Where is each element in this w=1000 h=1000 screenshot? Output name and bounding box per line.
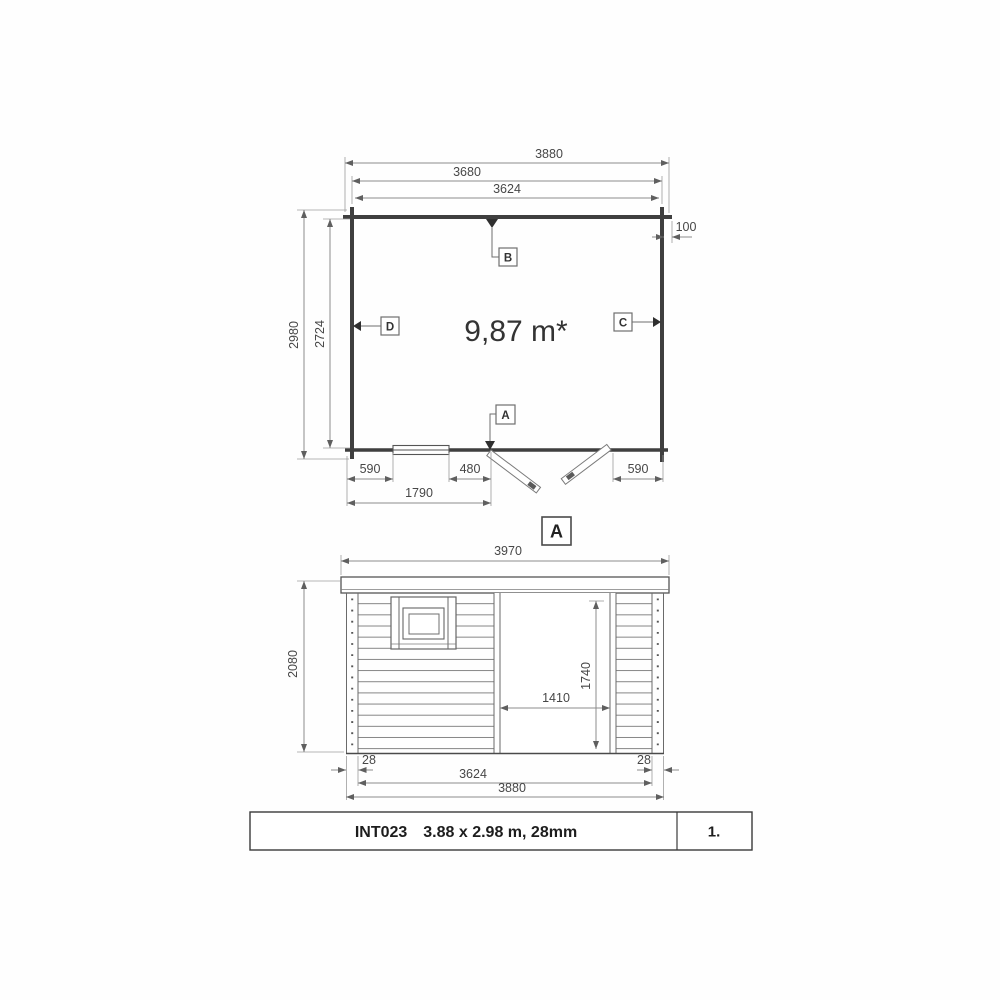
elev-dim-log-wall-length-label: 3624	[459, 767, 487, 781]
plan-marker-b: B	[486, 219, 517, 266]
elev-dim-roof-width-label: 3970	[494, 544, 522, 558]
elev-dim-bottom-chain: 28 28 3624 3880	[331, 753, 679, 800]
elev-window-glass	[409, 614, 439, 634]
elev-dim-door-height-label: 1740	[579, 662, 593, 690]
plan-dim-inner-depth: 2724	[313, 219, 350, 448]
plan-area-label: 9,87 m*	[464, 315, 568, 348]
section-marker: A	[542, 517, 571, 545]
elev-dim-corner-left-label: 28	[362, 753, 376, 767]
section-marker-label: A	[550, 522, 563, 542]
plan-dim-overall-width: 3880	[345, 147, 669, 213]
elev-window	[391, 597, 456, 649]
plan-dim-inner-width: 3624	[355, 182, 659, 198]
plan-dim-wall-to-window-label: 590	[360, 462, 381, 476]
technical-drawing-page: 9,87 m* B A D C	[0, 0, 1000, 1000]
title-block: INT0233.88 x 2.98 m, 28mm 1.	[250, 812, 752, 850]
plan-dim-wall-to-door-label: 1790	[405, 486, 433, 500]
plan-marker-a-label: A	[501, 410, 509, 422]
elev-dim-wall-height-label: 2080	[286, 650, 300, 678]
plan-dim-inner-width-label: 3624	[493, 182, 521, 196]
floor-plan: 9,87 m* B A D C	[287, 147, 696, 506]
plan-window	[393, 446, 449, 455]
plan-dim-roof-overhang-label: 100	[676, 220, 697, 234]
plan-dim-inner-depth-label: 2724	[313, 320, 327, 348]
cabin-drawing: 9,87 m* B A D C	[0, 0, 1000, 1000]
plan-marker-c-label: C	[619, 318, 627, 330]
elev-siding-right	[616, 593, 652, 753]
elev-corner-post-right	[652, 593, 664, 753]
title-block-model: INT0233.88 x 2.98 m, 28mm	[355, 824, 577, 841]
front-elevation: 3970	[286, 544, 679, 800]
elev-door-opening	[494, 593, 616, 753]
elev-dim-roof-width: 3970	[341, 544, 669, 575]
elev-corner-post-left	[347, 593, 359, 753]
plan-dim-door-to-wall-label: 590	[628, 462, 649, 476]
elev-dim-corner-right-label: 28	[637, 753, 651, 767]
plan-marker-d-label: D	[386, 322, 394, 334]
elev-roof-fascia	[341, 577, 669, 593]
elev-dim-overall-width-label: 3880	[498, 781, 526, 795]
plan-marker-d: D	[353, 317, 399, 335]
plan-door-left-leaf	[487, 450, 541, 493]
plan-marker-c: C	[614, 313, 661, 331]
elev-dim-wall-height: 2080	[286, 581, 344, 752]
elev-dim-door-width-label: 1410	[542, 691, 570, 705]
plan-dim-overall-width-label: 3880	[535, 147, 563, 161]
title-block-page-number: 1.	[708, 824, 721, 841]
title-model-size: 3.88 x 2.98 m, 28mm	[423, 824, 577, 841]
title-model-code: INT023	[355, 824, 408, 841]
plan-dim-roof-overhang: 100	[652, 220, 696, 243]
plan-dim-window-to-door-label: 480	[460, 462, 481, 476]
plan-marker-a: A	[485, 405, 515, 450]
plan-dim-overall-depth-label: 2980	[287, 321, 301, 349]
plan-marker-b-label: B	[504, 253, 512, 265]
plan-dim-log-length-label: 3680	[453, 165, 481, 179]
